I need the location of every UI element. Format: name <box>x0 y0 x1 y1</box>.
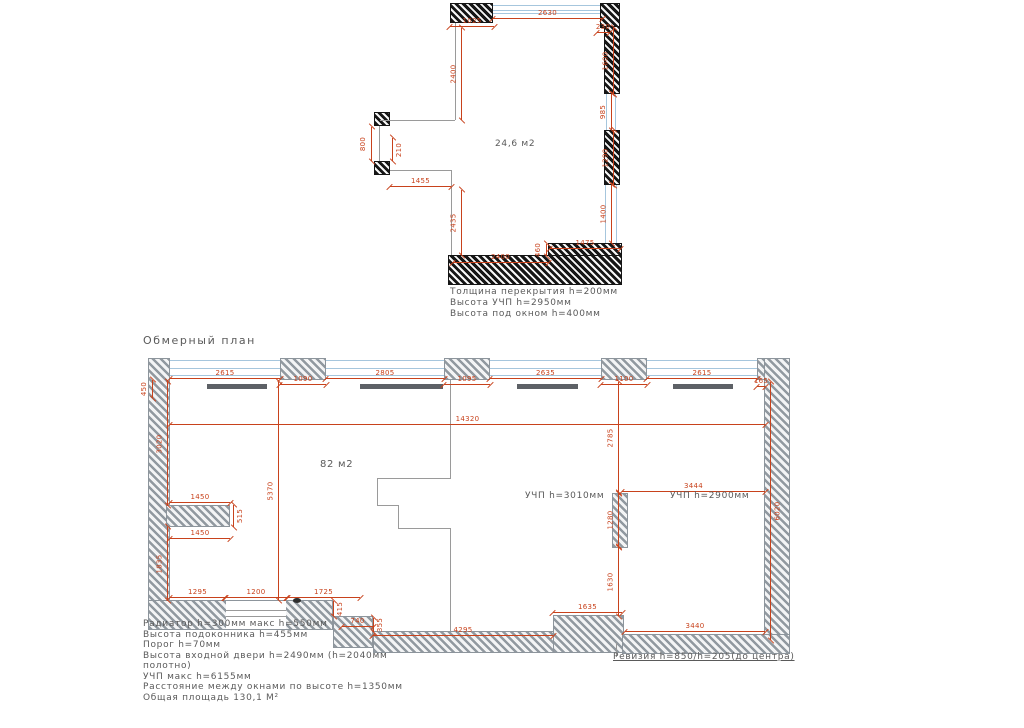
floor-plan-canvas: Обмерный план 26301025230240016009851290… <box>0 0 1024 728</box>
dimension-label: 1450 <box>150 493 250 502</box>
dimension-label: 5370 <box>265 382 276 600</box>
legend-text: Высота входной двери h=2490мм (h=2040мм <box>143 651 387 661</box>
dimension <box>618 493 619 547</box>
dimension <box>280 384 326 385</box>
dimension <box>225 597 287 598</box>
note-line: Высота под окном h=400мм <box>450 309 601 319</box>
dimension <box>770 382 771 640</box>
interior-line <box>380 120 455 121</box>
wall-segment <box>622 634 790 654</box>
interior-line <box>377 478 378 506</box>
dimension <box>390 186 451 187</box>
dimension <box>233 505 234 527</box>
dimension <box>613 28 614 94</box>
dimension <box>611 94 612 130</box>
dimension <box>278 382 279 600</box>
dimension-label: 1475 <box>530 239 640 248</box>
legend-text: Радиатор h=300мм макс h=550мм <box>143 619 328 629</box>
dimension-label: 3440 <box>605 622 785 631</box>
interior-line <box>450 528 451 631</box>
interior-line <box>226 616 286 617</box>
dimension-label: 1280 <box>605 493 616 547</box>
dimension-label: 1455 <box>370 177 471 186</box>
legend-text: Расстояние между окнами по высоте h=1350… <box>143 682 403 692</box>
dimension-label: 2785 <box>605 382 616 493</box>
legend-text: Общая площадь 130,1 М² <box>143 693 279 703</box>
dimension-label: 1725 <box>267 588 380 597</box>
dimension-label: 2435 <box>448 190 459 255</box>
room-area-label: 24,6 м2 <box>495 139 535 149</box>
dimension-label: 14320 <box>150 415 785 424</box>
radiator <box>360 384 443 389</box>
dimension <box>618 547 619 616</box>
dimension-label: 1025 <box>430 17 514 26</box>
dimension-label: 2400 <box>448 28 459 120</box>
room-area-label: УЧП h=3010мм <box>525 491 604 501</box>
wall-segment <box>374 112 390 126</box>
dimension-label: 415 <box>335 601 346 616</box>
dimension-label: 800 <box>358 127 369 161</box>
measurement-plan-title: Обмерный план <box>143 334 256 347</box>
dimension <box>170 424 765 425</box>
dimension <box>461 190 462 255</box>
dimension-label: 1290 <box>600 130 611 185</box>
dimension <box>170 538 230 539</box>
dimension <box>287 597 360 598</box>
room-area-label: 82 м2 <box>320 459 353 470</box>
dimension <box>170 502 230 503</box>
legend-text: Порог h=70мм <box>143 640 221 650</box>
dimension <box>461 28 462 120</box>
legend-text: Высота подоконника h=455мм <box>143 630 308 640</box>
note-line: Толщина перекрытия h=200мм <box>450 287 618 297</box>
interior-line <box>226 610 286 611</box>
dimension <box>444 384 490 385</box>
dimension <box>613 130 614 185</box>
note-line: Высота УЧП h=2950мм <box>450 298 572 308</box>
interior-line <box>398 505 399 529</box>
dimension-label: 985 <box>598 94 609 130</box>
dimension-label: 3020 <box>154 382 165 505</box>
dimension <box>167 382 168 505</box>
dimension-label: 1450 <box>150 529 250 538</box>
dimension-label: 3444 <box>602 482 785 491</box>
dimension <box>170 597 225 598</box>
dimension <box>373 635 553 636</box>
dimension <box>371 127 372 161</box>
dimension <box>611 185 612 243</box>
legend-text: УЧП макс h=6155мм <box>143 672 251 682</box>
dimension-label: 1400 <box>598 185 609 243</box>
dimension-label: 450 <box>139 380 150 398</box>
revision-note: Ревизия h=850/h=205(до центра) <box>613 652 795 662</box>
dimension <box>550 248 620 249</box>
dimension-label: 1600 <box>600 28 611 94</box>
interior-line <box>379 126 380 161</box>
dimension-label: 1630 <box>605 547 616 616</box>
dimension-label: 6020 <box>772 382 783 640</box>
interior-line <box>377 478 451 479</box>
dimension <box>152 380 153 398</box>
dimension <box>333 601 334 616</box>
dimension <box>757 386 765 387</box>
interior-line <box>450 380 451 478</box>
dimension <box>450 26 494 27</box>
dimension-label: 210 <box>394 138 405 161</box>
radiator <box>517 384 578 389</box>
dimension <box>453 262 548 263</box>
dimension-label: 4295 <box>353 626 573 635</box>
wall-segment <box>374 161 390 175</box>
interior-line <box>390 170 452 171</box>
dimension <box>618 382 619 493</box>
interior-line <box>377 505 399 506</box>
dimension <box>392 138 393 161</box>
radiator <box>207 384 267 389</box>
room-area-label: УЧП h=2900мм <box>670 491 749 501</box>
wall-segment <box>166 505 230 527</box>
interior-line <box>398 528 451 529</box>
dimension-label: 515 <box>235 505 246 527</box>
legend-text: полотно) <box>143 661 191 671</box>
door-mark <box>293 598 301 603</box>
dimension <box>625 631 765 632</box>
radiator <box>673 384 733 389</box>
dimension-label: 1635 <box>533 603 642 612</box>
